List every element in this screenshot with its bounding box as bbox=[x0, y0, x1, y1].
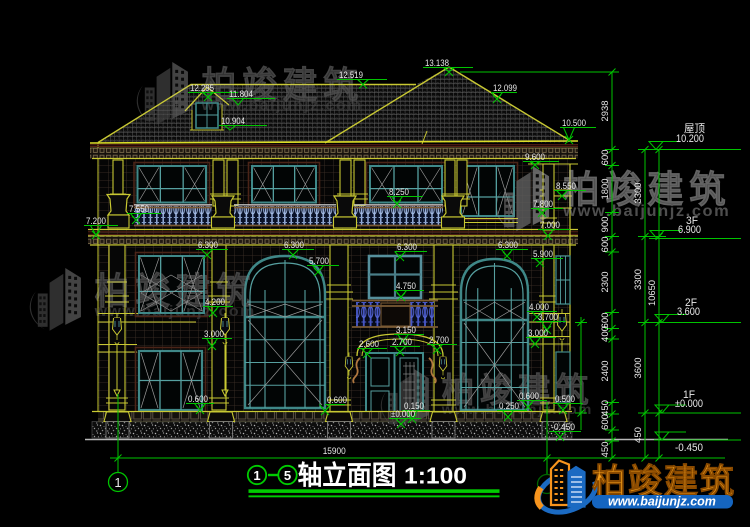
svg-text:6.300: 6.300 bbox=[284, 240, 304, 251]
svg-text:3.000: 3.000 bbox=[204, 329, 224, 340]
svg-text:10.904: 10.904 bbox=[221, 116, 245, 127]
svg-text:0.500: 0.500 bbox=[555, 394, 575, 405]
svg-text:3.000: 3.000 bbox=[528, 328, 548, 339]
svg-text:10.200: 10.200 bbox=[676, 133, 704, 145]
svg-text:6.300: 6.300 bbox=[397, 242, 417, 253]
svg-text:±0.000: ±0.000 bbox=[391, 409, 415, 420]
svg-text:600: 600 bbox=[600, 150, 611, 166]
svg-text:5.700: 5.700 bbox=[309, 256, 329, 267]
svg-text:5.900: 5.900 bbox=[533, 249, 553, 260]
svg-text:600: 600 bbox=[600, 414, 611, 430]
svg-text:6.900: 6.900 bbox=[678, 224, 701, 236]
svg-text:7.550: 7.550 bbox=[129, 204, 149, 215]
svg-text:12.519: 12.519 bbox=[339, 70, 363, 81]
svg-text:9.600: 9.600 bbox=[525, 152, 545, 163]
svg-text:2.600: 2.600 bbox=[359, 339, 379, 350]
svg-text:12.295: 12.295 bbox=[190, 83, 214, 94]
svg-text:4.750: 4.750 bbox=[396, 281, 416, 292]
svg-text:5: 5 bbox=[284, 468, 291, 483]
svg-text:-0.450: -0.450 bbox=[675, 442, 703, 454]
svg-text:450: 450 bbox=[633, 427, 644, 443]
svg-text:±0.000: ±0.000 bbox=[675, 398, 703, 410]
svg-text:10650: 10650 bbox=[647, 280, 658, 306]
svg-text:12.099: 12.099 bbox=[493, 83, 517, 94]
svg-text:www.baijunjz.com: www.baijunjz.com bbox=[608, 495, 716, 509]
svg-text:3.700: 3.700 bbox=[538, 312, 558, 323]
svg-text:轴立面图: 轴立面图 bbox=[298, 461, 397, 491]
svg-text:2.700: 2.700 bbox=[392, 337, 412, 348]
svg-text:3.150: 3.150 bbox=[396, 325, 416, 336]
svg-text:2400: 2400 bbox=[600, 361, 611, 382]
svg-text:4.200: 4.200 bbox=[205, 297, 225, 308]
svg-text:3600: 3600 bbox=[633, 358, 644, 379]
svg-text:11.804: 11.804 bbox=[229, 89, 253, 100]
svg-text:600: 600 bbox=[600, 237, 611, 253]
svg-text:1800: 1800 bbox=[600, 179, 611, 200]
svg-text:3.600: 3.600 bbox=[677, 306, 700, 318]
svg-text:www.baijunjz.com: www.baijunjz.com bbox=[201, 97, 363, 114]
svg-text:6.300: 6.300 bbox=[198, 240, 218, 251]
svg-text:2.700: 2.700 bbox=[429, 335, 449, 346]
svg-text:6.300: 6.300 bbox=[498, 240, 518, 251]
svg-text:10.500: 10.500 bbox=[562, 118, 586, 129]
svg-text:450: 450 bbox=[600, 400, 611, 416]
svg-text:15900: 15900 bbox=[323, 446, 346, 457]
svg-text:7.800: 7.800 bbox=[533, 199, 553, 210]
svg-text:7.200: 7.200 bbox=[86, 216, 106, 227]
svg-text:450: 450 bbox=[600, 442, 611, 458]
svg-text:7.000: 7.000 bbox=[540, 220, 560, 231]
svg-text:900: 900 bbox=[600, 217, 611, 233]
svg-text:400: 400 bbox=[600, 326, 611, 342]
svg-text:1: 1 bbox=[114, 475, 121, 490]
svg-text:3300: 3300 bbox=[633, 183, 644, 204]
svg-text:0.600: 0.600 bbox=[519, 391, 539, 402]
svg-text:0.250: 0.250 bbox=[499, 401, 519, 412]
svg-text:2300: 2300 bbox=[600, 272, 611, 293]
svg-text:0.600: 0.600 bbox=[188, 394, 208, 405]
svg-text:2938: 2938 bbox=[600, 101, 611, 122]
svg-text:www.baijunjz.com: www.baijunjz.com bbox=[94, 303, 256, 320]
svg-text:-0.450: -0.450 bbox=[551, 422, 575, 433]
svg-text:8.550: 8.550 bbox=[556, 181, 576, 192]
svg-text:13.138: 13.138 bbox=[425, 58, 449, 69]
svg-text:1:100: 1:100 bbox=[404, 463, 467, 489]
svg-text:1: 1 bbox=[253, 468, 260, 483]
svg-text:www.baijunjz.com: www.baijunjz.com bbox=[562, 203, 730, 220]
svg-text:8.250: 8.250 bbox=[389, 187, 409, 198]
svg-text:3300: 3300 bbox=[633, 269, 644, 290]
svg-text:0.600: 0.600 bbox=[327, 395, 347, 406]
